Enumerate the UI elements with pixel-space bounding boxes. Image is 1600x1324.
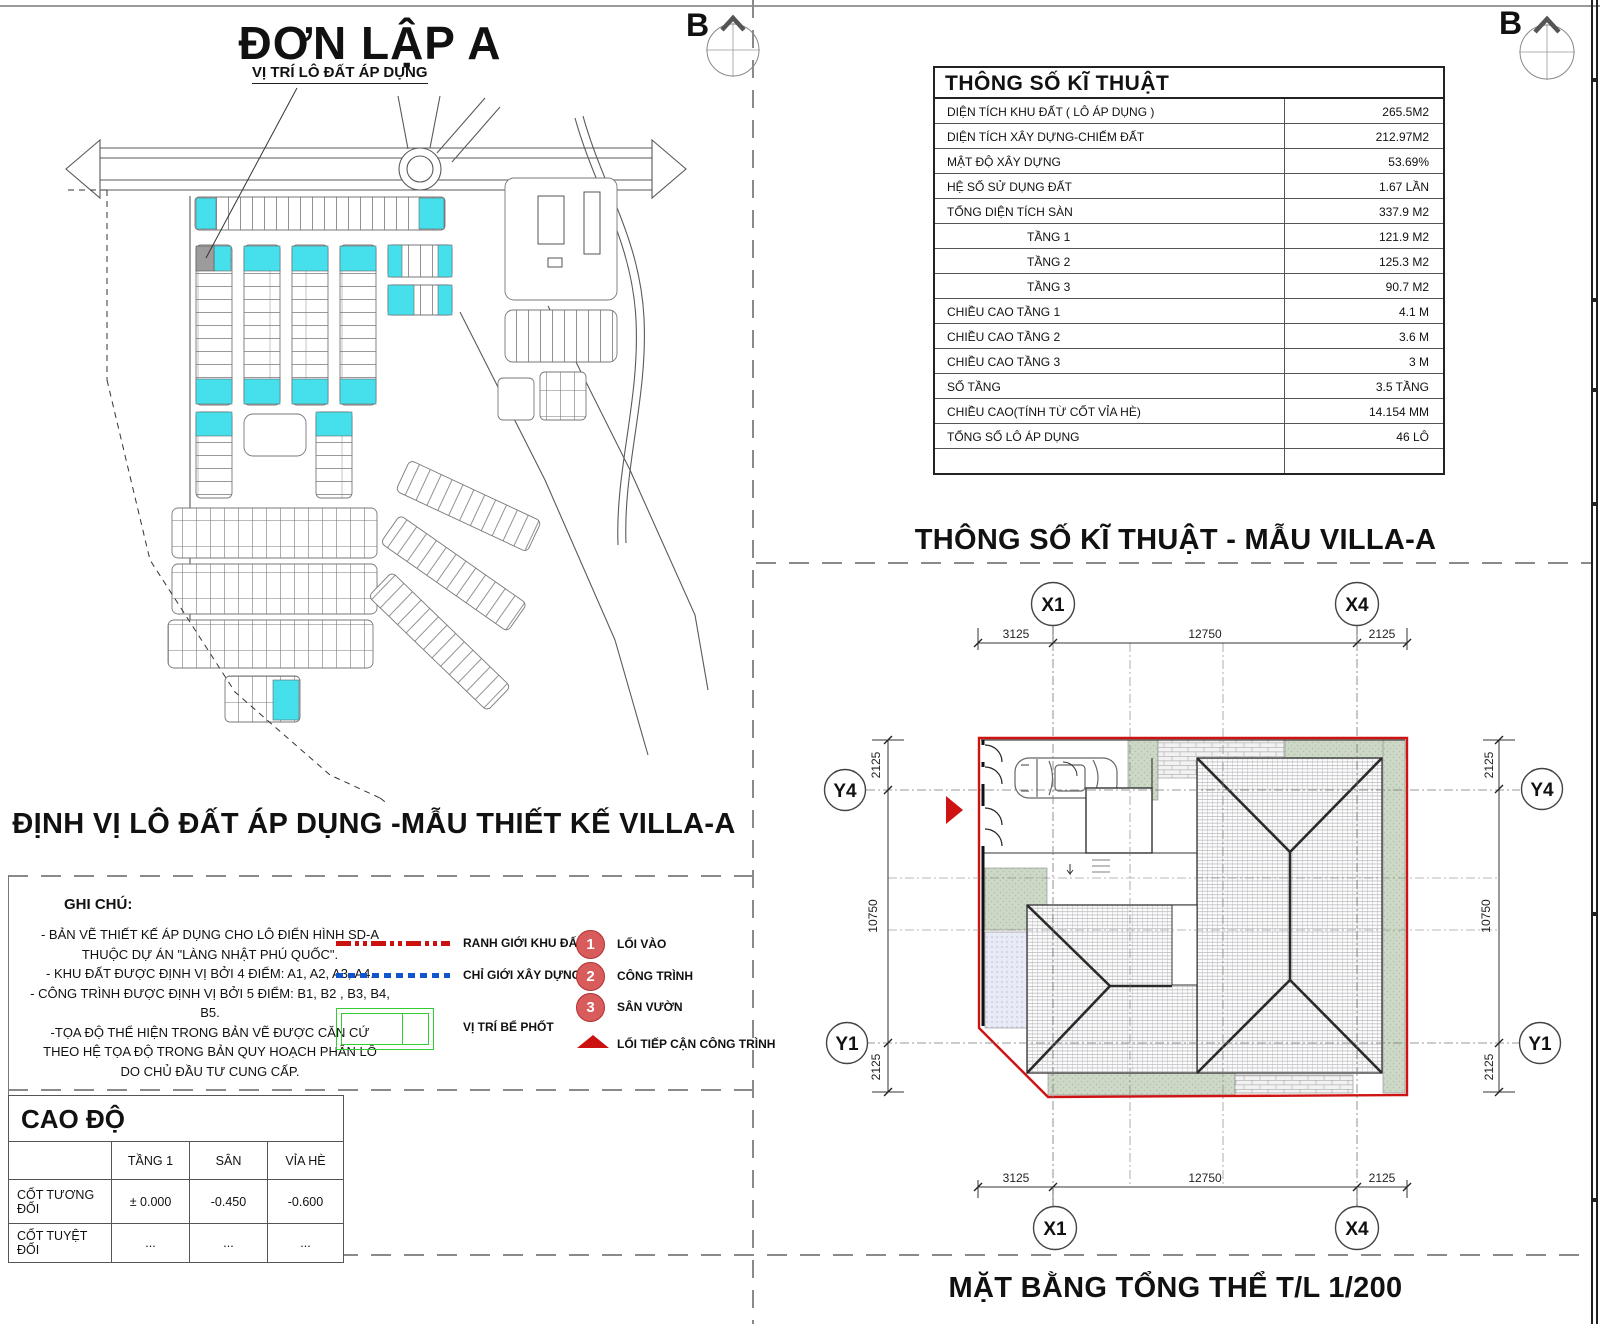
specs-row: TẦNG 2125.3 M2 [935,249,1443,274]
dim-label: 2125 [869,751,883,778]
north-label: B [1499,5,1522,41]
site-layout-plan: 3125 12750 2125 3125 12750 2125 2125 107… [758,568,1593,1252]
spec-label: DIỆN TÍCH KHU ĐẤT ( LÔ ÁP DỤNG ) [935,99,1285,123]
cell-value: -0.450 [190,1180,268,1224]
legend-septic-inner [341,1013,429,1045]
legend-building-line-icon [336,973,450,978]
grid-bubble-y4-left: Y4 [833,781,857,802]
spec-value: 14.154 MM [1285,399,1443,423]
page-title: ĐƠN LẬP A [0,16,740,70]
spec-label: DIỆN TÍCH XÂY DỰNG-CHIẾM ĐẤT [935,124,1285,148]
legend-boundary-label: RANH GIỚI KHU ĐẤT [463,936,585,950]
spec-label: CHIỀU CAO TẦNG 1 [935,299,1285,323]
plan-title: MẶT BẰNG TỔNG THỂ T/L 1/200 [758,1272,1593,1305]
right-separator-top [756,562,1593,564]
elevation-table-title: CAO ĐỘ [9,1096,343,1142]
grid-bubble-x1-top: X1 [1041,595,1065,616]
specs-row: CHIỀU CAO(TÍNH TỪ CỐT VỈA HÈ)14.154 MM [935,399,1443,424]
specs-row: CHIỀU CAO TẦNG 33 M [935,349,1443,374]
spec-label: HỆ SỐ SỬ DỤNG ĐẤT [935,174,1285,198]
legend-boundary-line-icon [336,941,450,946]
grid-bubble-y1-right: Y1 [1528,1034,1552,1055]
spec-value: 90.7 M2 [1285,274,1443,298]
site-plan-map [55,86,750,802]
drawing-sheet: B B ĐƠN LẬP A VỊ TRÍ LÔ ĐẤT ÁP DỤNG [0,0,1600,1324]
cell-value: -0.600 [268,1180,343,1224]
legend-septic-icon [336,1008,434,1050]
paving-rear [1235,1075,1353,1093]
notes-title: GHI CHÚ: [64,896,132,913]
note-line: DO CHỦ ĐẦU TƯ CUNG CẤP. [30,1062,390,1082]
left-separator-notes [8,875,752,877]
cell-value: ... [190,1224,268,1262]
dim-label: 12750 [1188,627,1222,641]
spec-label: CHIỀU CAO TẦNG 2 [935,324,1285,348]
specs-row: DIỆN TÍCH XÂY DỰNG-CHIẾM ĐẤT212.97M2 [935,124,1443,149]
row-label: CỐT TƯƠNG ĐỐI [9,1180,112,1224]
col-header: VỈA HÈ [268,1142,343,1180]
border-tick [1591,388,1598,392]
legend-entry-label: LỐI VÀO [617,937,666,951]
spec-value: 265.5M2 [1285,99,1443,123]
spec-value: 1.67 LẦN [1285,174,1443,198]
row-label: CỐT TUYỆT ĐỐI [9,1224,112,1262]
grid-bubble-y1-left: Y1 [835,1034,859,1055]
note-line: THUỘC DỰ ÁN "LÀNG NHẬT PHÚ QUỐC". [30,945,390,965]
spec-value: 46 LÔ [1285,424,1443,448]
dim-label: 2125 [1482,751,1496,778]
border-tick [1591,298,1598,302]
specs-row: TẦNG 390.7 M2 [935,274,1443,299]
spec-value: 3.6 M [1285,324,1443,348]
spec-value: 53.69% [1285,149,1443,173]
legend-access-icon [577,1035,609,1048]
specs-row: TỔNG SỐ LÔ ÁP DỤNG46 LÔ [935,424,1443,449]
elevation-table: CAO ĐỘ TẦNG 1 SÂN VỈA HÈ CỐT TƯƠNG ĐỐI ±… [8,1095,344,1263]
dim-label: 10750 [866,899,880,933]
map-callout-label: VỊ TRÍ LÔ ĐẤT ÁP DỤNG [252,64,428,84]
spec-label: TỔNG DIỆN TÍCH SÀN [935,199,1285,223]
specs-row: CHIỀU CAO TẦNG 14.1 M [935,299,1443,324]
border-tick [1591,502,1598,506]
spec-value: 3 M [1285,349,1443,373]
courtyard-notch [1172,905,1197,985]
dim-label: 12750 [1188,1171,1222,1185]
legend-septic-label: VỊ TRÍ BỂ PHỐT [463,1020,554,1034]
left-separator-caodo [8,1089,752,1091]
col-header: SÂN [190,1142,268,1180]
spec-value: 121.9 M2 [1285,224,1443,248]
legend-entry-badge: 1 [576,930,605,959]
sheet-top-border [0,5,1600,7]
grid-bubble-y4-right: Y4 [1530,780,1554,801]
legend-building-badge: 2 [576,962,605,991]
spec-label: TẦNG 3 [935,274,1285,298]
down-arrow-icon [1067,864,1073,874]
cell-value: ± 0.000 [112,1180,190,1224]
legend-garden-label: SÂN VƯỜN [617,1000,683,1014]
left-section-heading: ĐỊNH VỊ LÔ ĐẤT ÁP DỤNG -MẪU THIẾT KẾ VIL… [0,808,748,841]
spec-value: 337.9 M2 [1285,199,1443,223]
spec-label: CHIỀU CAO TẦNG 3 [935,349,1285,373]
specs-row: HỆ SỐ SỬ DỤNG ĐẤT1.67 LẦN [935,174,1443,199]
specs-row: TẦNG 1121.9 M2 [935,224,1443,249]
spec-value: 3.5 TẦNG [1285,374,1443,398]
notes-block: - BẢN VẼ THIẾT KẾ ÁP DỤNG CHO LÔ ĐIỂN HÌ… [30,925,390,1081]
highlighted-lot [196,246,214,271]
dim-label: 3125 [1003,627,1030,641]
right-section-heading: THÔNG SỐ KĨ THUẬT - MẪU VILLA-A [758,524,1593,557]
specs-row: DIỆN TÍCH KHU ĐẤT ( LÔ ÁP DỤNG )265.5M2 [935,99,1443,124]
dim-label: 2125 [869,1053,883,1080]
legend-septic-divider [402,1013,403,1045]
leader-line [206,88,297,258]
grid-bubble-x4-top: X4 [1345,595,1369,616]
dim-label: 10750 [1479,899,1493,933]
legend-building-label: CÔNG TRÌNH [617,969,693,983]
spec-label: CHIỀU CAO(TÍNH TỪ CỐT VỈA HÈ) [935,399,1285,423]
specs-table-title: THÔNG SỐ KĨ THUẬT [935,68,1443,99]
specs-row: CHIỀU CAO TẦNG 23.6 M [935,324,1443,349]
cell-value: ... [268,1224,343,1262]
col-header [9,1142,112,1180]
access-arrow-icon [946,796,963,824]
legend-garden-badge: 3 [576,993,605,1022]
dim-label: 2125 [1369,627,1396,641]
spec-label: SỐ TẦNG [935,374,1285,398]
dim-label: 2125 [1369,1171,1396,1185]
specs-row: TỔNG DIỆN TÍCH SÀN337.9 M2 [935,199,1443,224]
dim-label: 2125 [1482,1053,1496,1080]
spec-label: MẬT ĐỘ XÂY DỰNG [935,149,1285,173]
legend-access-label: LỐI TIẾP CẬN CÔNG TRÌNH [617,1037,775,1051]
spec-label: TẦNG 1 [935,224,1285,248]
spec-value: 125.3 M2 [1285,249,1443,273]
roof-main [1197,758,1382,1073]
dim-label: 3125 [1003,1171,1030,1185]
specs-row: MẬT ĐỘ XÂY DỰNG53.69% [935,149,1443,174]
spec-label: TẦNG 2 [935,249,1285,273]
specs-table: THÔNG SỐ KĨ THUẬT DIỆN TÍCH KHU ĐẤT ( LÔ… [933,66,1445,475]
cell-value: ... [112,1224,190,1262]
spec-value: 212.97M2 [1285,124,1443,148]
specs-row-empty [935,449,1443,473]
spec-label: TỔNG SỐ LÔ ÁP DỤNG [935,424,1285,448]
legend-building-line-label: CHỈ GIỚI XÂY DỰNG [463,968,581,982]
col-header: TẦNG 1 [112,1142,190,1180]
spec-value: 4.1 M [1285,299,1443,323]
specs-row: SỐ TẦNG3.5 TẦNG [935,374,1443,399]
gate-swing-icons [985,745,1002,846]
grid-bubble-x1-bottom: X1 [1043,1219,1067,1240]
panel-divider [752,0,754,1324]
grid-bubble-x4-bottom: X4 [1345,1219,1369,1240]
stair-icon [1092,860,1110,872]
north-indicator-right: B [1489,2,1593,87]
